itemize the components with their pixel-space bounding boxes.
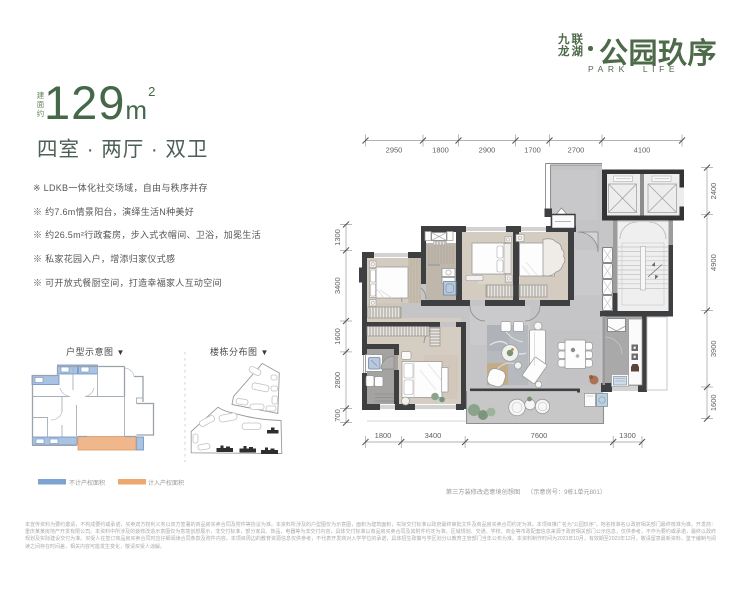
svg-text:1800: 1800 [375, 431, 392, 440]
svg-text:2400: 2400 [709, 183, 718, 200]
svg-text:1800: 1800 [432, 146, 449, 155]
svg-text:1300: 1300 [333, 229, 342, 246]
svg-text:1600: 1600 [709, 394, 718, 411]
svg-text:3900: 3900 [709, 340, 718, 357]
svg-text:4100: 4100 [634, 146, 651, 155]
svg-text:4900: 4900 [709, 254, 718, 271]
svg-text:7600: 7600 [531, 431, 548, 440]
svg-text:2800: 2800 [333, 372, 342, 389]
svg-text:2950: 2950 [386, 146, 403, 155]
svg-text:1700: 1700 [524, 146, 541, 155]
svg-text:1300: 1300 [619, 431, 636, 440]
svg-text:3400: 3400 [333, 277, 342, 294]
svg-text:2900: 2900 [479, 146, 496, 155]
svg-text:1600: 1600 [333, 328, 342, 345]
svg-text:3400: 3400 [425, 431, 442, 440]
svg-text:700: 700 [333, 409, 342, 422]
svg-text:2700: 2700 [568, 146, 585, 155]
